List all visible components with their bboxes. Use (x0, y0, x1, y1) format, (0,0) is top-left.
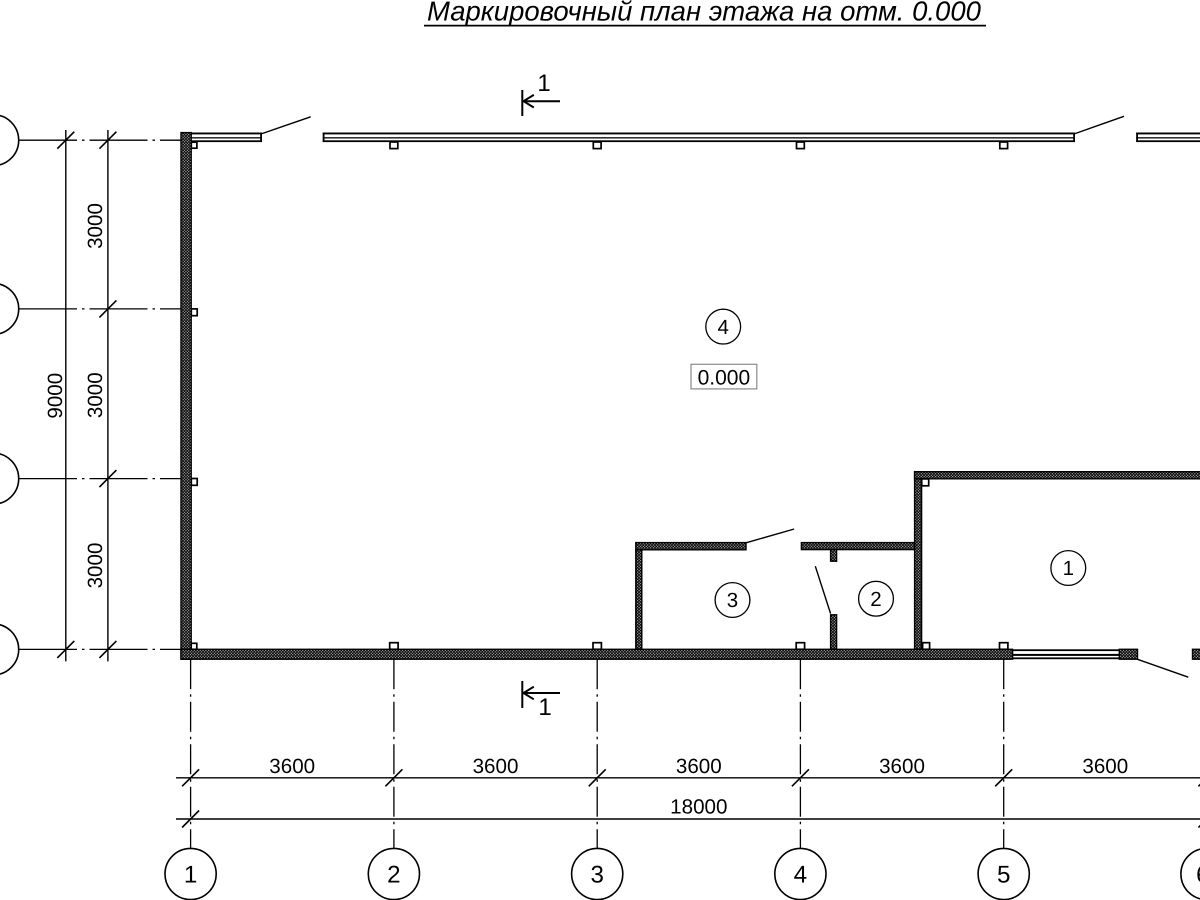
svg-text:1: 1 (538, 694, 551, 721)
svg-text:9000: 9000 (44, 373, 67, 419)
svg-text:3600: 3600 (879, 755, 925, 778)
svg-text:3600: 3600 (473, 755, 519, 778)
svg-text:18000: 18000 (670, 795, 727, 818)
svg-text:3000: 3000 (84, 203, 107, 249)
svg-text:3000: 3000 (84, 543, 107, 589)
svg-text:2: 2 (870, 588, 881, 611)
svg-text:6: 6 (1196, 862, 1200, 889)
svg-text:0.000: 0.000 (698, 366, 751, 389)
svg-text:1: 1 (184, 862, 197, 889)
svg-text:Маркировочный план этажа на от: Маркировочный план этажа на отм. 0.000 (427, 0, 982, 27)
svg-text:3600: 3600 (676, 755, 722, 778)
svg-text:3600: 3600 (269, 755, 315, 778)
svg-text:1: 1 (1063, 557, 1074, 580)
svg-text:2: 2 (387, 862, 400, 889)
svg-text:4: 4 (794, 862, 807, 889)
svg-text:3: 3 (727, 589, 738, 612)
svg-text:3000: 3000 (84, 372, 107, 418)
svg-text:5: 5 (997, 862, 1010, 889)
svg-text:4: 4 (717, 316, 728, 339)
svg-text:3600: 3600 (1082, 755, 1128, 778)
svg-text:3: 3 (590, 862, 603, 889)
svg-text:1: 1 (537, 70, 550, 97)
